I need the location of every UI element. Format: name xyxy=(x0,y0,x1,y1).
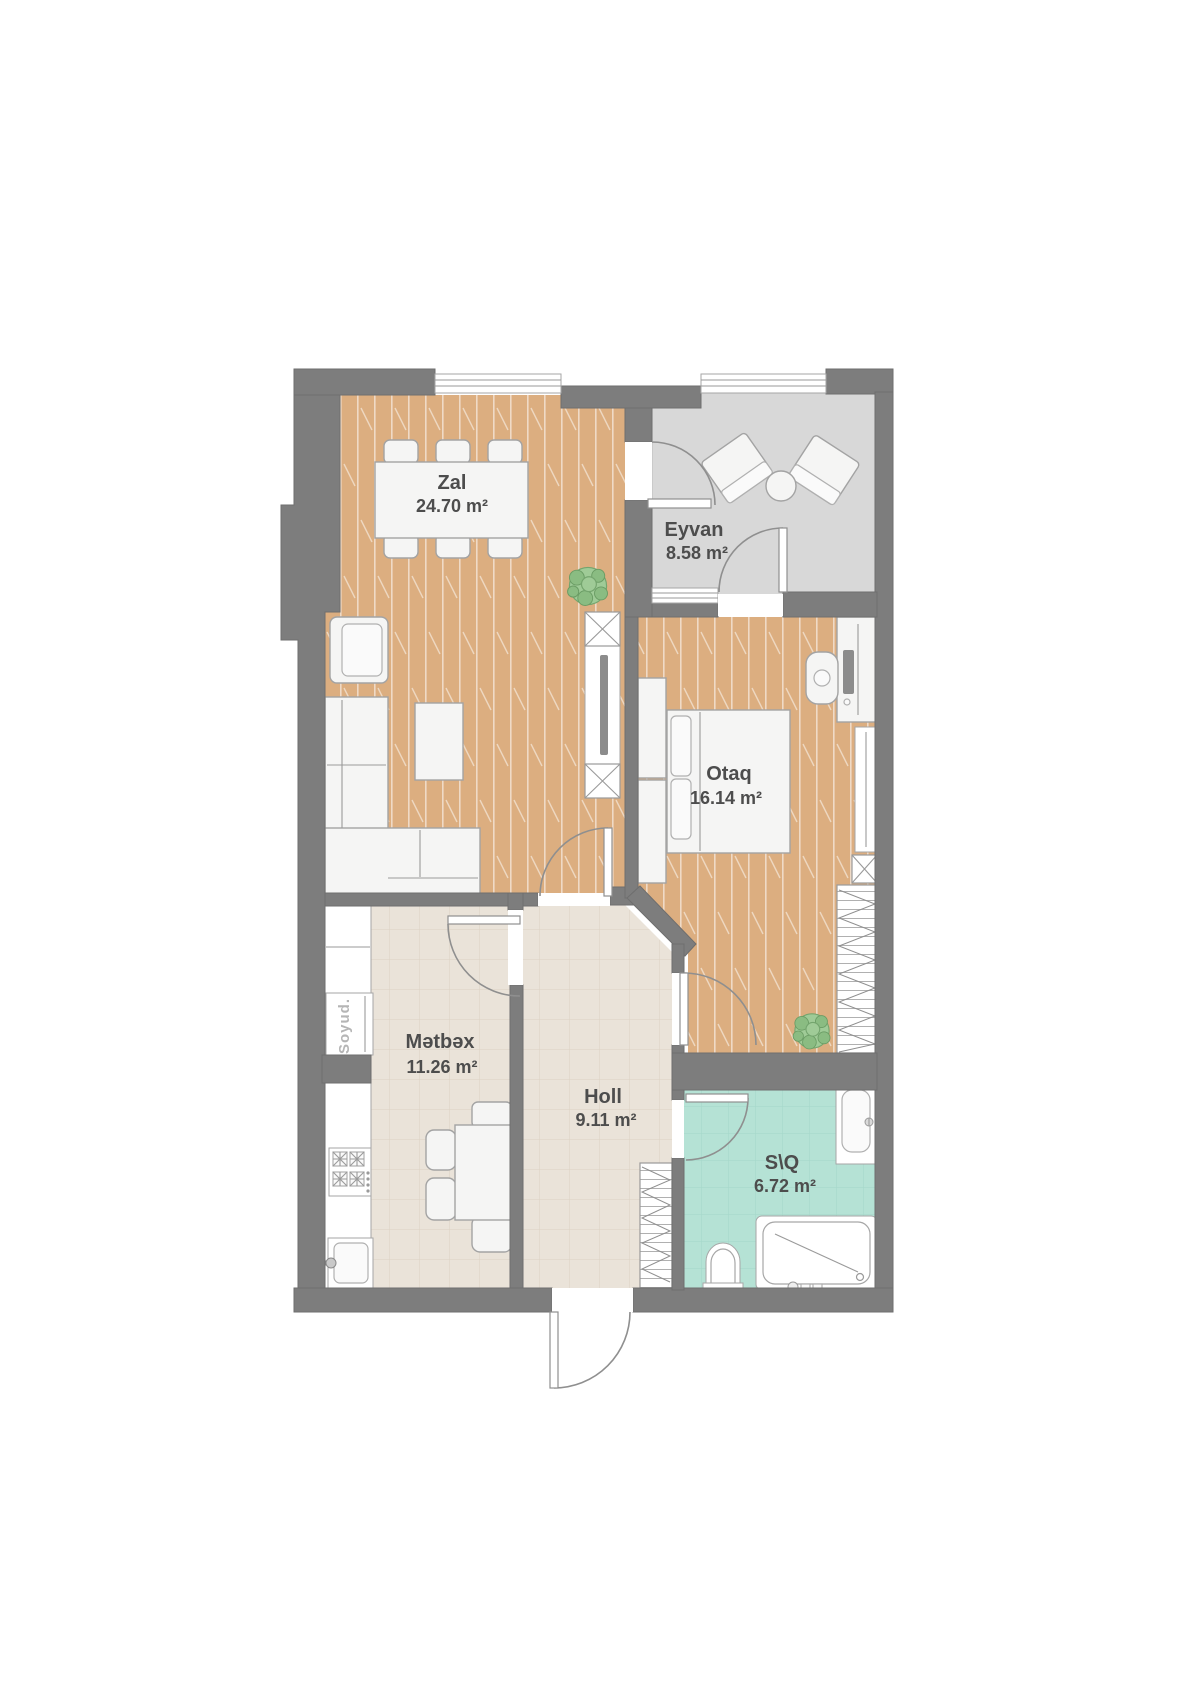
room-eyvan-floor xyxy=(652,393,875,600)
stove-icon xyxy=(329,1148,371,1196)
tv-icon xyxy=(600,655,608,755)
room-label-sq: S\Q xyxy=(765,1152,799,1174)
zal-eyvan-wall xyxy=(625,408,652,442)
hall-bath-wall xyxy=(672,1158,684,1290)
room-area-sq: 6.72 m² xyxy=(754,1176,816,1196)
room-area-holl: 9.11 m² xyxy=(575,1110,636,1130)
bottom-wall xyxy=(633,1288,893,1312)
zal-kitchen-wall xyxy=(325,893,538,906)
top-wall-pier xyxy=(561,386,701,408)
desk xyxy=(837,617,877,722)
dining-chair xyxy=(436,440,470,464)
bathtub-icon xyxy=(756,1216,877,1292)
tv-unit xyxy=(585,612,620,798)
dining-chair xyxy=(488,440,522,464)
top-wall xyxy=(294,369,435,395)
top-wall xyxy=(826,369,893,394)
office-chair xyxy=(806,652,838,704)
room-area-zal: 24.70 m² xyxy=(416,496,488,516)
kitchen-chair xyxy=(472,1216,512,1252)
pillow xyxy=(671,716,691,776)
door-entrance xyxy=(550,1312,630,1388)
zal-eyvan-wall xyxy=(625,500,652,617)
coffee-table xyxy=(415,703,463,780)
kitchen-chair xyxy=(426,1178,456,1220)
balcony-table xyxy=(766,471,796,501)
room-area-eyvan: 8.58 m² xyxy=(666,543,728,563)
armchair xyxy=(330,617,388,683)
room-label-otaq: Otaq xyxy=(706,763,752,785)
mouse-icon xyxy=(844,699,850,705)
kitchen-chair xyxy=(472,1102,512,1128)
kitchen-hall-wall xyxy=(510,985,523,1288)
kitchen-table xyxy=(455,1125,518,1220)
nightstand xyxy=(638,678,666,778)
room-area-otaq: 16.14 m² xyxy=(690,788,762,808)
kitchen-counter xyxy=(325,905,373,1288)
room-label-zal: Zal xyxy=(438,472,467,494)
room-label-holl: Holl xyxy=(584,1086,622,1108)
kitchen-hall-wall xyxy=(508,893,523,910)
hall-otaq-wall xyxy=(672,944,684,973)
eyvan-otaq-wall xyxy=(652,602,718,617)
shaft-box-icon xyxy=(852,855,877,883)
dresser-panel xyxy=(855,727,877,852)
kitchen-chair xyxy=(426,1130,456,1170)
kitchen-niche-wall xyxy=(322,1055,371,1083)
eyvan-otaq-wall xyxy=(783,592,877,617)
window xyxy=(652,588,718,603)
floor-plan-drawing: Soyud. xyxy=(0,0,1200,1698)
wardrobe xyxy=(837,885,877,1053)
window xyxy=(701,374,826,393)
washbasin-icon xyxy=(836,1080,877,1164)
floor-plan-page: Soyud. xyxy=(0,0,1200,1698)
right-wall xyxy=(875,392,893,1312)
dining-chair xyxy=(384,440,418,464)
fridge-label: Soyud. xyxy=(336,998,353,1054)
otaq-bath-wall xyxy=(672,1053,877,1090)
room-label-eyvan: Eyvan xyxy=(665,519,724,541)
hall-closet xyxy=(640,1163,672,1288)
zal-otaq-wall xyxy=(625,617,638,898)
window xyxy=(435,374,561,393)
room-area-metbex: 11.26 m² xyxy=(406,1057,477,1077)
nightstand xyxy=(638,780,666,883)
bottom-wall xyxy=(294,1288,552,1312)
monitor-icon xyxy=(843,650,854,694)
room-label-metbex: Mətbəx xyxy=(406,1031,475,1053)
pillow xyxy=(671,779,691,839)
